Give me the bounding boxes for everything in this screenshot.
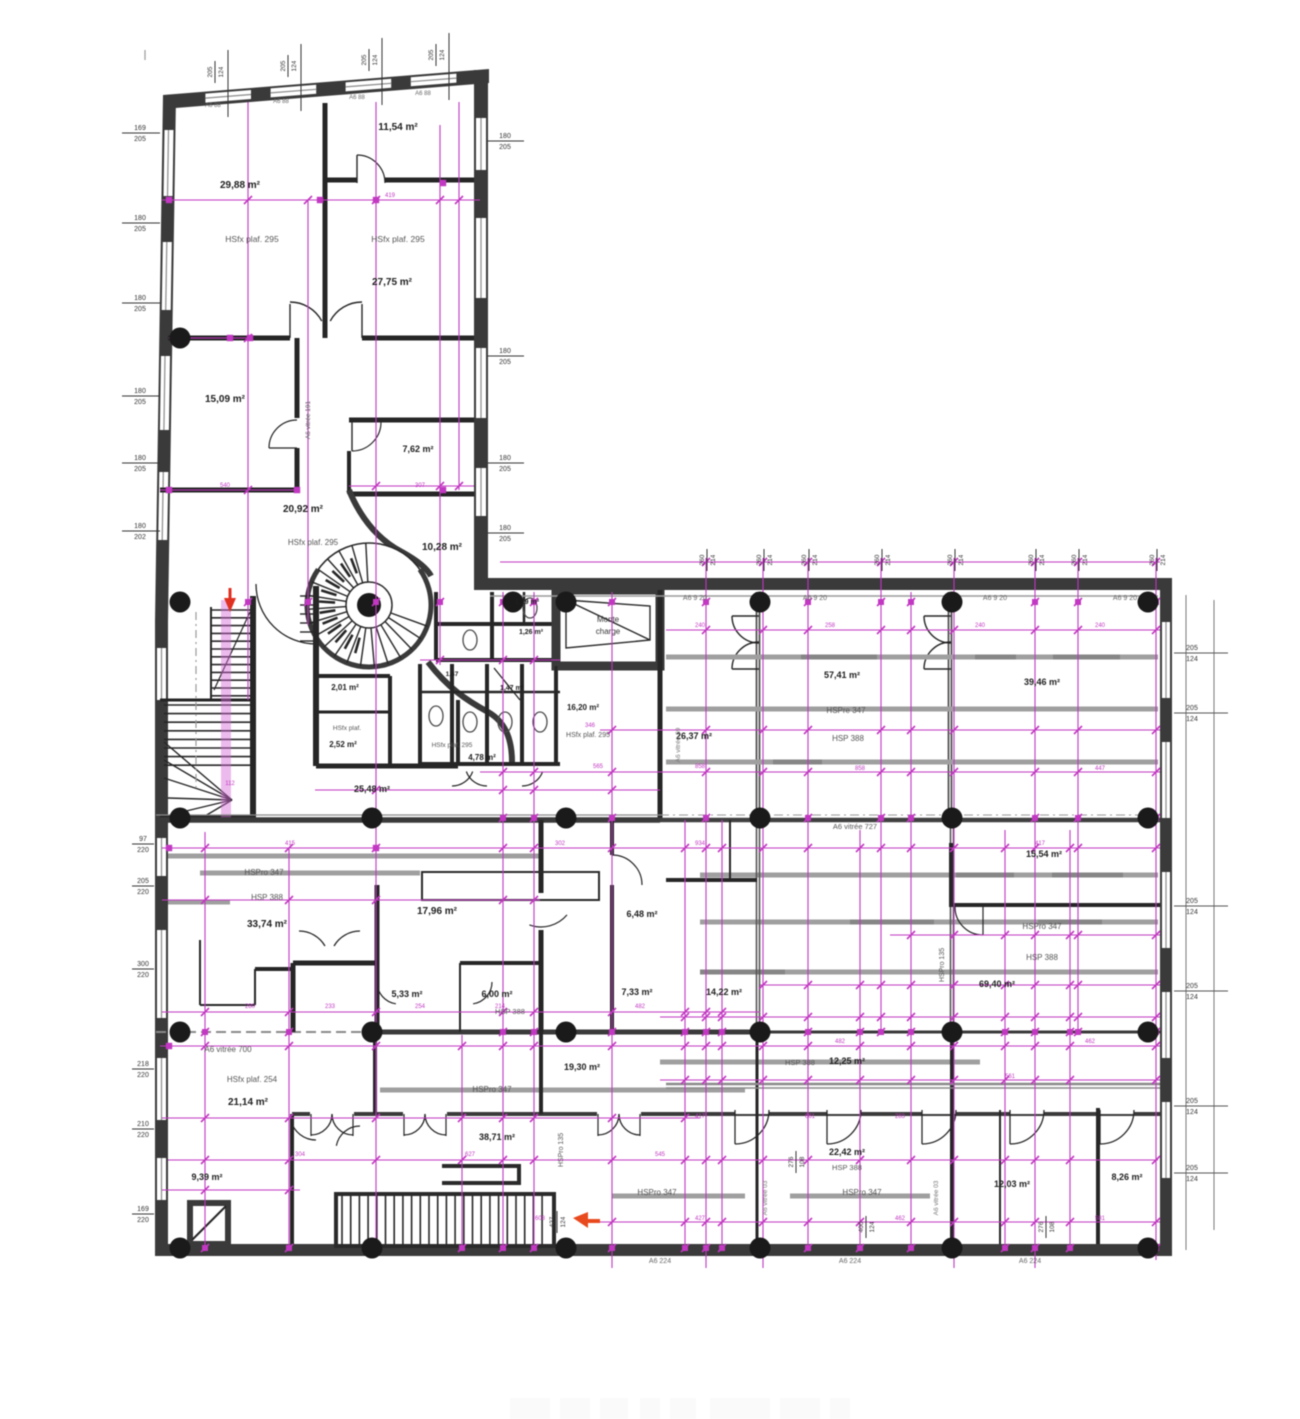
svg-text:214: 214 <box>885 554 892 565</box>
svg-text:A6 224: A6 224 <box>839 1258 861 1265</box>
svg-text:16,20 m²: 16,20 m² <box>567 703 599 712</box>
svg-text:HSfx plaf. 254: HSfx plaf. 254 <box>227 1075 278 1084</box>
svg-text:69,40 m²: 69,40 m² <box>979 979 1015 989</box>
svg-text:19,30 m²: 19,30 m² <box>564 1062 600 1072</box>
svg-text:205: 205 <box>1186 705 1198 712</box>
svg-text:540: 540 <box>220 483 231 489</box>
svg-text:482: 482 <box>635 1004 646 1010</box>
svg-text:304: 304 <box>295 1152 306 1158</box>
svg-text:419: 419 <box>385 193 396 199</box>
svg-text:214: 214 <box>812 554 819 565</box>
svg-text:180: 180 <box>134 455 146 462</box>
svg-text:A6 88: A6 88 <box>415 91 431 97</box>
svg-text:214: 214 <box>710 554 717 565</box>
svg-text:HSPro 347: HSPro 347 <box>1022 922 1062 931</box>
svg-text:124: 124 <box>1186 909 1198 916</box>
svg-text:346: 346 <box>585 723 596 729</box>
svg-text:A6 224: A6 224 <box>1019 1258 1041 1265</box>
svg-text:HSP 388: HSP 388 <box>832 1163 862 1172</box>
svg-text:205: 205 <box>499 536 511 543</box>
svg-text:7,62 m²: 7,62 m² <box>402 444 433 454</box>
svg-text:HSfx plaf. 295: HSfx plaf. 295 <box>371 234 425 244</box>
svg-text:202: 202 <box>134 534 146 541</box>
svg-text:280: 280 <box>245 1004 256 1010</box>
svg-text:276: 276 <box>1038 1221 1045 1232</box>
svg-text:HSP 388: HSP 388 <box>785 1058 815 1067</box>
svg-text:283: 283 <box>895 1114 906 1120</box>
svg-text:HSP 388: HSP 388 <box>832 734 864 743</box>
svg-text:124: 124 <box>439 49 446 60</box>
svg-text:169: 169 <box>137 1206 149 1213</box>
svg-text:124: 124 <box>1186 994 1198 1001</box>
svg-text:240: 240 <box>975 623 986 629</box>
svg-text:180: 180 <box>134 523 146 530</box>
svg-text:240: 240 <box>695 623 706 629</box>
svg-text:108: 108 <box>799 1156 806 1167</box>
svg-text:29,88 m²: 29,88 m² <box>220 180 261 191</box>
svg-text:205: 205 <box>499 144 511 151</box>
svg-text:180: 180 <box>499 348 511 355</box>
svg-text:A6 88: A6 88 <box>349 95 365 101</box>
svg-text:565: 565 <box>593 764 604 770</box>
svg-text:415: 415 <box>285 841 296 847</box>
svg-text:661: 661 <box>805 1114 816 1120</box>
svg-text:4,78 m²: 4,78 m² <box>468 753 496 762</box>
svg-text:17,96 m²: 17,96 m² <box>417 906 458 917</box>
svg-text:A6 vitrée 727: A6 vitrée 727 <box>833 822 877 831</box>
svg-text:124: 124 <box>1186 656 1198 663</box>
svg-text:A6 9 20: A6 9 20 <box>683 595 707 602</box>
svg-text:A6 9 20: A6 9 20 <box>803 595 827 602</box>
svg-text:HSfx plaf. 295: HSfx plaf. 295 <box>225 234 279 244</box>
svg-text:A6 vitrée 03: A6 vitrée 03 <box>933 1180 940 1215</box>
svg-text:HSPro 135: HSPro 135 <box>558 1133 565 1167</box>
svg-text:220: 220 <box>137 1072 149 1079</box>
svg-text:180: 180 <box>134 215 146 222</box>
svg-text:417: 417 <box>695 1114 706 1120</box>
svg-text:Monte: Monte <box>597 615 620 624</box>
svg-text:A6 vitrée 69: A6 vitrée 69 <box>675 727 682 762</box>
svg-text:205: 205 <box>134 306 146 313</box>
svg-text:9,39 m²: 9,39 m² <box>191 1172 222 1182</box>
svg-text:205: 205 <box>1186 1165 1198 1172</box>
svg-text:205: 205 <box>1186 645 1198 652</box>
svg-text:1,47 m²: 1,47 m² <box>500 685 525 692</box>
svg-text:214: 214 <box>958 554 965 565</box>
svg-text:2,52 m²: 2,52 m² <box>329 740 357 749</box>
svg-text:258: 258 <box>825 623 836 629</box>
svg-text:858: 858 <box>855 766 866 772</box>
svg-text:HSfx plaf. 295: HSfx plaf. 295 <box>288 538 339 547</box>
svg-text:124: 124 <box>560 1216 567 1227</box>
svg-text:205: 205 <box>207 66 214 77</box>
svg-text:482: 482 <box>835 1039 846 1045</box>
svg-text:124: 124 <box>1186 1176 1198 1183</box>
svg-text:214: 214 <box>1039 554 1046 565</box>
svg-text:A6 88: A6 88 <box>205 103 221 109</box>
svg-text:A6 9 20: A6 9 20 <box>983 595 1007 602</box>
svg-text:27,75 m²: 27,75 m² <box>372 277 413 288</box>
svg-text:25,48 m²: 25,48 m² <box>354 784 390 794</box>
svg-text:180: 180 <box>499 455 511 462</box>
svg-text:10,28 m²: 10,28 m² <box>422 542 463 553</box>
svg-text:302: 302 <box>555 841 566 847</box>
svg-text:108: 108 <box>1049 1221 1056 1232</box>
svg-text:858: 858 <box>695 764 706 770</box>
svg-text:A6 vitrée 191: A6 vitrée 191 <box>305 400 312 439</box>
svg-text:260: 260 <box>699 554 706 565</box>
svg-text:8,26 m²: 8,26 m² <box>1111 1172 1142 1182</box>
svg-text:205: 205 <box>361 54 368 65</box>
svg-text:14,22 m²: 14,22 m² <box>706 987 742 997</box>
svg-text:HSPro 347: HSPro 347 <box>244 868 284 877</box>
svg-text:1,19 m²: 1,19 m² <box>515 599 540 606</box>
svg-text:545: 545 <box>655 1152 666 1158</box>
svg-text:HSP 388: HSP 388 <box>251 893 283 902</box>
svg-text:447: 447 <box>1095 766 1106 772</box>
svg-text:A6 9 20: A6 9 20 <box>1113 595 1137 602</box>
svg-text:260: 260 <box>1071 554 1078 565</box>
svg-text:57,41 m²: 57,41 m² <box>824 670 860 680</box>
svg-text:124: 124 <box>869 1221 876 1232</box>
svg-text:581: 581 <box>1095 1216 1106 1222</box>
svg-text:627: 627 <box>465 1152 476 1158</box>
svg-text:417: 417 <box>1035 841 1046 847</box>
svg-text:210: 210 <box>137 1121 149 1128</box>
svg-text:5,33 m²: 5,33 m² <box>391 989 422 999</box>
svg-text:38,71 m²: 38,71 m² <box>479 1132 515 1142</box>
svg-text:260: 260 <box>874 554 881 565</box>
svg-text:124: 124 <box>291 60 298 71</box>
svg-text:220: 220 <box>137 1132 149 1139</box>
svg-text:180: 180 <box>499 525 511 532</box>
svg-text:205: 205 <box>134 466 146 473</box>
svg-text:7,33 m²: 7,33 m² <box>621 987 652 997</box>
svg-text:169: 169 <box>134 125 146 132</box>
svg-text:218: 218 <box>137 1061 149 1068</box>
svg-text:6,48 m²: 6,48 m² <box>626 909 657 919</box>
svg-text:214: 214 <box>1160 554 1167 565</box>
svg-text:300: 300 <box>137 961 149 968</box>
svg-text:1,47: 1,47 <box>446 671 459 678</box>
svg-text:180: 180 <box>499 133 511 140</box>
svg-text:HSfx plaf. 295: HSfx plaf. 295 <box>432 742 473 749</box>
svg-text:124: 124 <box>218 66 225 77</box>
svg-text:608: 608 <box>535 1216 546 1222</box>
svg-text:205: 205 <box>134 399 146 406</box>
svg-text:205: 205 <box>137 878 149 885</box>
svg-text:205: 205 <box>1186 898 1198 905</box>
svg-text:A6 vitrée 700: A6 vitrée 700 <box>204 1045 252 1054</box>
svg-text:205: 205 <box>499 359 511 366</box>
svg-text:254: 254 <box>415 1004 426 1010</box>
svg-text:A6 224: A6 224 <box>649 1258 671 1265</box>
svg-text:HSPre 347: HSPre 347 <box>826 706 866 715</box>
svg-text:462: 462 <box>895 1216 906 1222</box>
svg-text:180: 180 <box>134 388 146 395</box>
svg-text:HSfx plaf.: HSfx plaf. <box>333 725 361 732</box>
svg-text:15,09 m²: 15,09 m² <box>205 394 246 405</box>
svg-text:427: 427 <box>549 1216 556 1227</box>
svg-text:260: 260 <box>756 554 763 565</box>
svg-text:233: 233 <box>325 1004 336 1010</box>
svg-text:205: 205 <box>499 466 511 473</box>
svg-text:112: 112 <box>225 781 235 787</box>
svg-text:180: 180 <box>134 295 146 302</box>
svg-text:400: 400 <box>858 1221 865 1232</box>
svg-text:205: 205 <box>1186 983 1198 990</box>
svg-text:934: 934 <box>695 841 706 847</box>
svg-text:20,92 m²: 20,92 m² <box>283 504 324 515</box>
svg-text:561: 561 <box>1005 1074 1016 1080</box>
svg-text:HSPro 135: HSPro 135 <box>939 948 946 982</box>
svg-text:2,01 m²: 2,01 m² <box>331 683 359 692</box>
svg-text:HSPro 347: HSPro 347 <box>842 1188 882 1197</box>
svg-text:220: 220 <box>137 972 149 979</box>
svg-text:21,14 m²: 21,14 m² <box>228 1097 269 1108</box>
svg-text:220: 220 <box>137 889 149 896</box>
svg-text:HSP 388: HSP 388 <box>1026 953 1058 962</box>
svg-text:HSfx plaf. 295: HSfx plaf. 295 <box>566 732 610 739</box>
svg-text:240: 240 <box>1095 623 1106 629</box>
svg-text:6,00 m²: 6,00 m² <box>481 989 512 999</box>
svg-text:260: 260 <box>1149 554 1156 565</box>
svg-text:22,42 m²: 22,42 m² <box>829 1147 865 1157</box>
svg-text:205: 205 <box>134 226 146 233</box>
svg-text:15,54 m²: 15,54 m² <box>1026 849 1062 859</box>
svg-text:HSPro 347: HSPro 347 <box>637 1188 677 1197</box>
svg-text:260: 260 <box>1028 554 1035 565</box>
svg-text:462: 462 <box>1085 1039 1096 1045</box>
svg-text:11,54 m²: 11,54 m² <box>378 122 418 133</box>
svg-text:260: 260 <box>947 554 954 565</box>
svg-text:39,46 m²: 39,46 m² <box>1024 677 1060 687</box>
svg-text:307: 307 <box>415 483 426 489</box>
svg-text:charge: charge <box>596 627 621 636</box>
svg-text:276: 276 <box>788 1156 795 1167</box>
svg-text:124: 124 <box>1186 1109 1198 1116</box>
svg-text:427: 427 <box>695 1216 706 1222</box>
svg-text:HSPro 347: HSPro 347 <box>472 1085 512 1094</box>
svg-text:1,26 m²: 1,26 m² <box>519 629 544 636</box>
svg-text:A6 88: A6 88 <box>273 99 289 105</box>
svg-text:260: 260 <box>801 554 808 565</box>
svg-text:124: 124 <box>1186 716 1198 723</box>
svg-text:12,25 m²: 12,25 m² <box>829 1056 865 1066</box>
svg-text:97: 97 <box>139 836 147 843</box>
svg-text:12,03 m²: 12,03 m² <box>994 1179 1030 1189</box>
svg-text:205: 205 <box>134 136 146 143</box>
svg-text:33,74 m²: 33,74 m² <box>247 919 288 930</box>
svg-text:205: 205 <box>1186 1098 1198 1105</box>
svg-text:205: 205 <box>280 60 287 71</box>
svg-text:214: 214 <box>1082 554 1089 565</box>
svg-text:220: 220 <box>137 1217 149 1224</box>
svg-text:214: 214 <box>767 554 774 565</box>
svg-text:214: 214 <box>495 1004 506 1010</box>
svg-text:205: 205 <box>428 49 435 60</box>
svg-text:A6 vitrée 03: A6 vitrée 03 <box>762 1180 769 1215</box>
svg-text:220: 220 <box>137 847 149 854</box>
svg-text:124: 124 <box>372 54 379 65</box>
